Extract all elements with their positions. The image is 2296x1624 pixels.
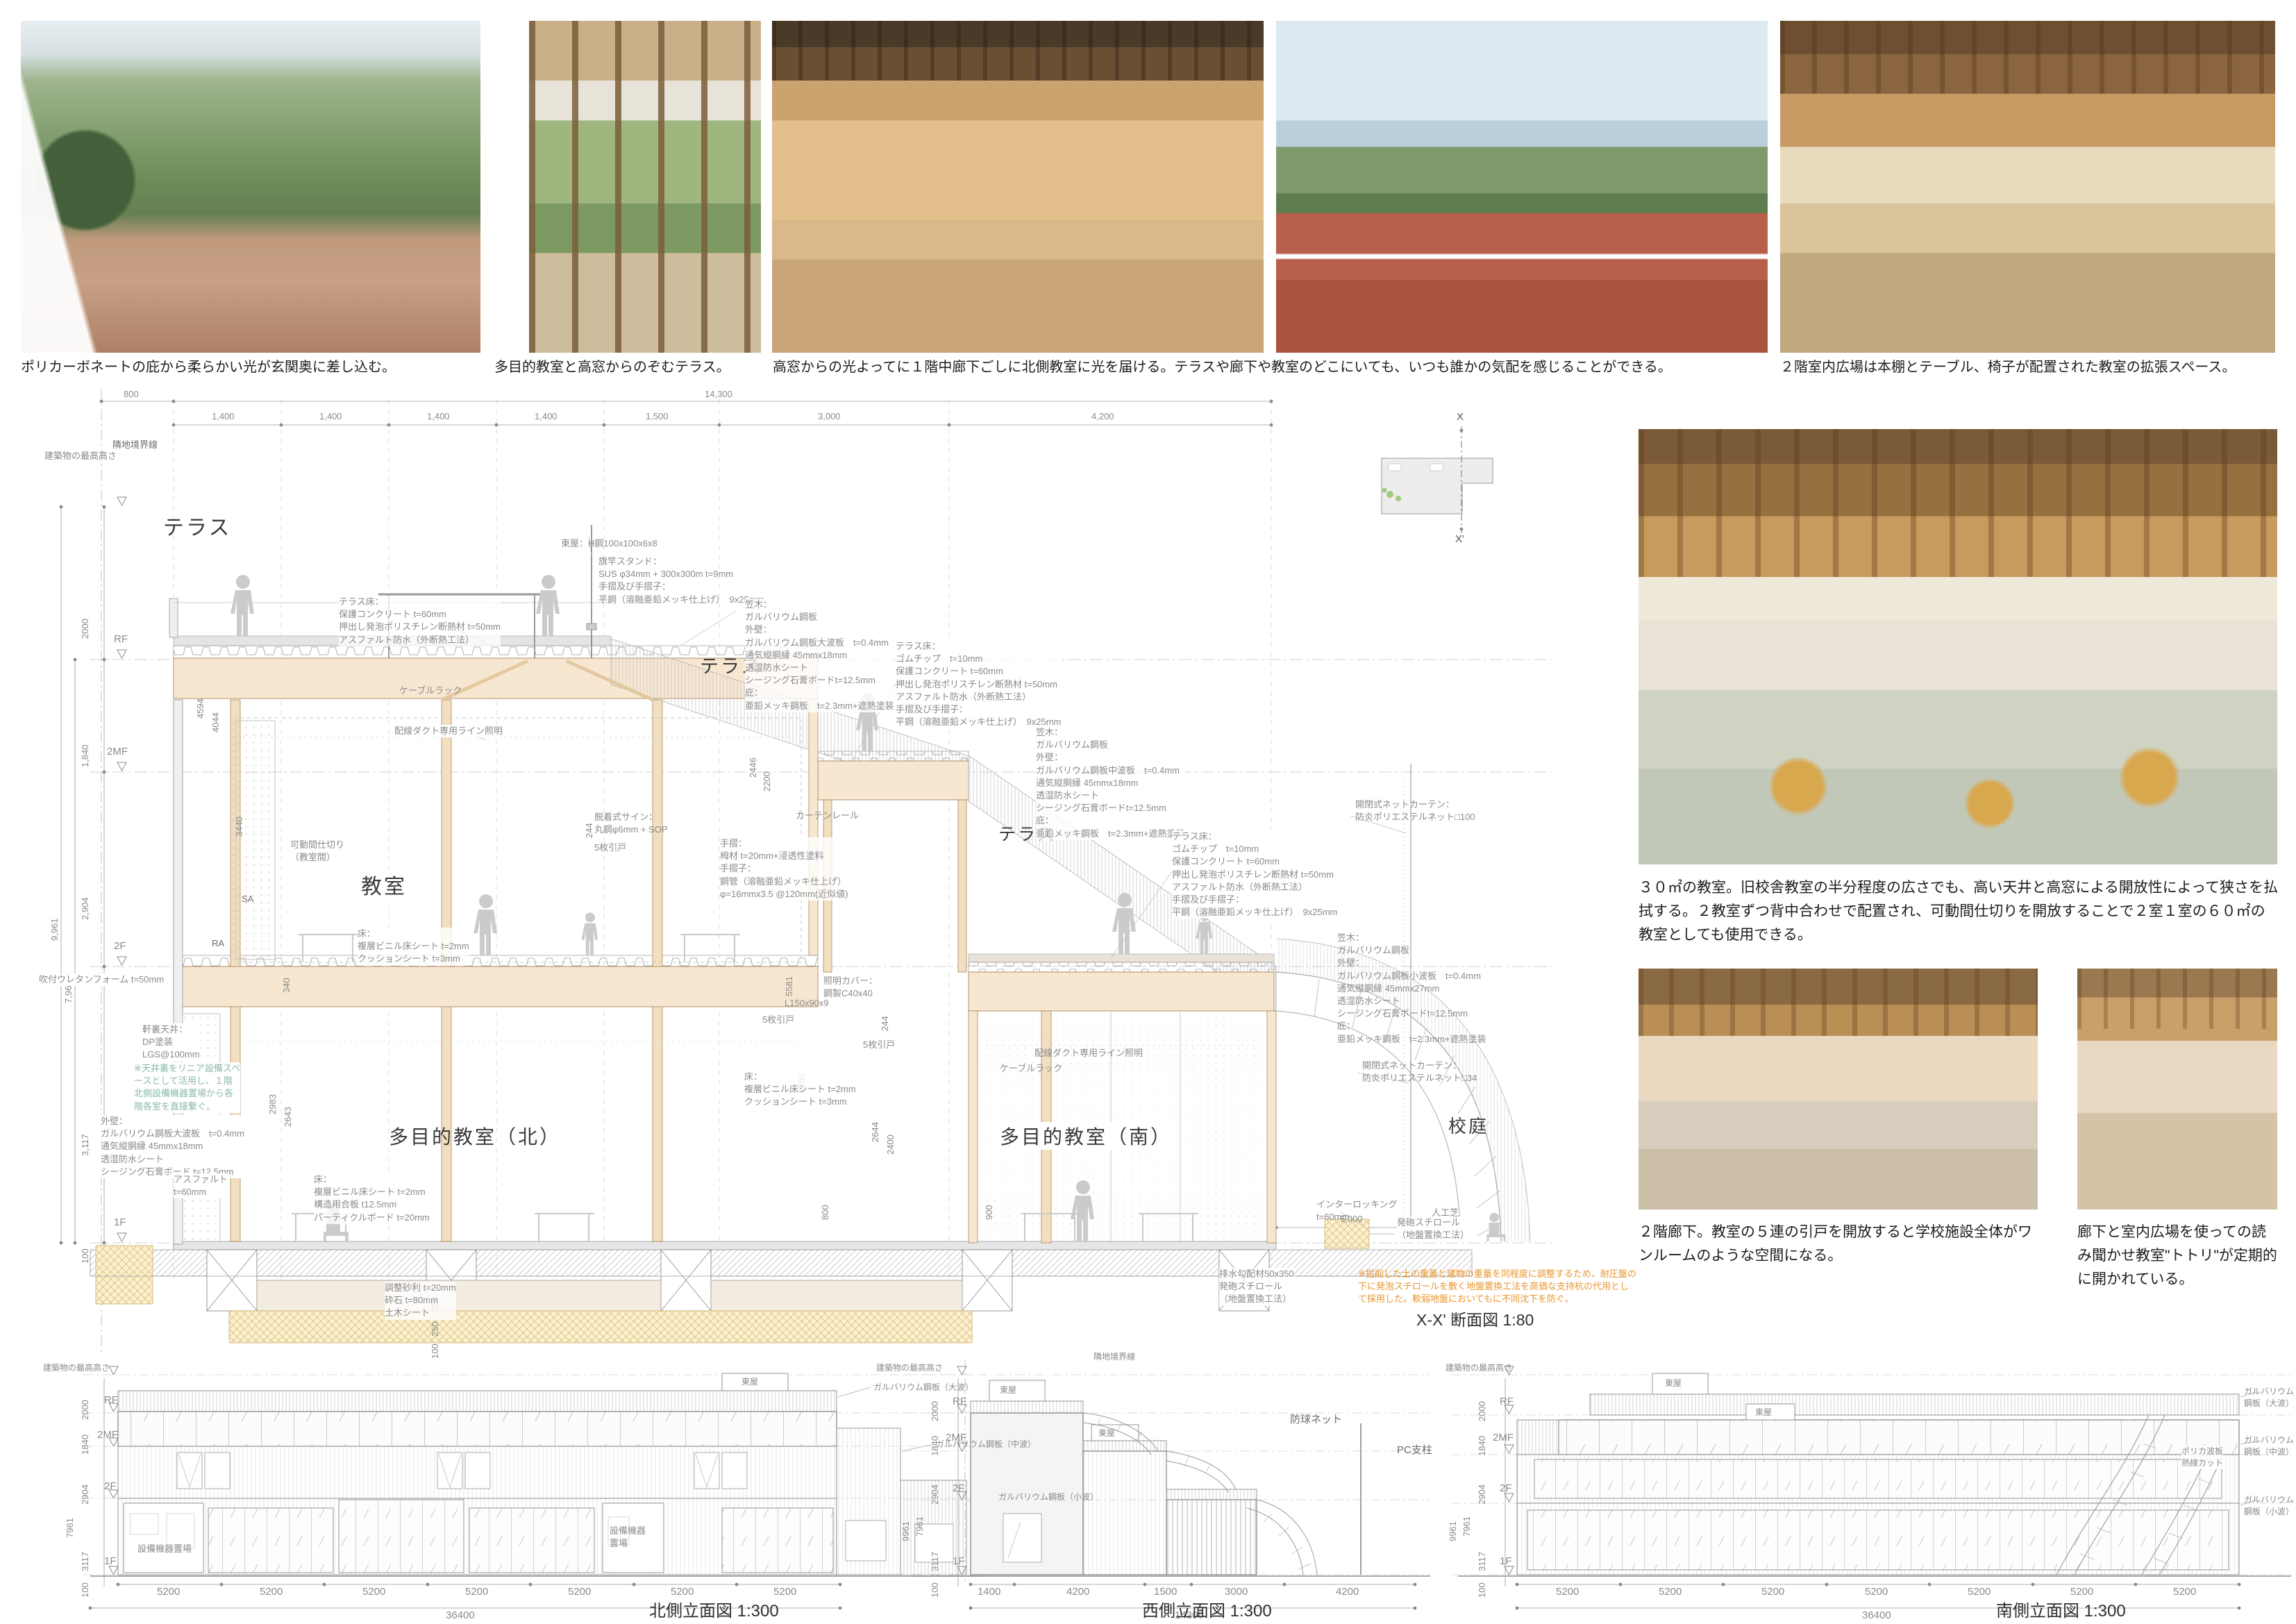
north-dim-100: 100 [80,1582,90,1598]
south-dim-7961: 7961 [1461,1516,1472,1537]
south-5200-4: 5200 [1865,1586,1888,1598]
label-floor-b: 床： 複層ビニル床シート t=2mm 構造用合板 t12.5mm パーティクルボ… [314,1173,430,1224]
south-5200-6: 5200 [2070,1586,2093,1598]
west-net: 防球ネット [1290,1412,1342,1427]
label-duct-light-1: 配線ダクト専用ライン照明 [394,725,503,737]
west-level-2mf: 2MF [946,1432,966,1443]
dim-5581: 5581 [784,976,794,996]
photo-reading-room [2077,969,2277,1209]
north-onami: ガルバリウム鋼板（大波） [873,1382,973,1393]
south-total: 36400 [1862,1609,1891,1621]
label-kasagi-mid: 笠木： ガルバリウム鋼板 外壁： ガルバリウム鋼板中波板 t=0.4mm 通気縦… [1036,726,1185,840]
south-5200-7: 5200 [2173,1586,2196,1598]
label-terrace-floor-b1: テラス床： ゴムチップ t=10mm 保護コンクリート t=60mm 押出し発泡… [896,640,1061,728]
north-equip-2: 設備機器 置場 [610,1525,646,1550]
west-level-1f: 1F [953,1555,965,1567]
label-sa: SA [242,893,253,905]
west-dim-9961: 9961 [900,1521,911,1541]
north-azumaya: 東屋 [741,1376,758,1388]
text-2f-corridor: ２階廊下。教室の５連の引戸を開放すると学校施設全体がワンルームのような空間になる… [1639,1221,2040,1268]
west-level-2f: 2F [953,1482,965,1494]
dim-4594: 4594 [195,698,206,719]
label-light-cover: 照明カバー： 鋼製C40x40 [823,975,878,1000]
note-ground-replacement: ※掘削した土の重量と建物の重量を同程度に調整するため、耐圧盤の 下に発泡スチロー… [1358,1268,1636,1306]
dim-2446: 2446 [748,757,758,778]
dim-i100: 100 [430,1343,440,1359]
west-dim-3117: 3117 [930,1552,940,1571]
south-azumaya-1: 東屋 [1665,1378,1682,1389]
north-5200-3: 5200 [362,1586,385,1598]
west-1400: 1400 [978,1586,1000,1598]
label-floor-a2: 床： 複層ビニル床シート t=2mm クッションシート t=3mm [744,1071,856,1109]
text-reading: 廊下と室内広場を使っての読み聞かせ教室"トトリ"が定期的に開かれている。 [2077,1221,2279,1291]
dim-2200: 2200 [762,771,772,792]
south-dim-1840: 1840 [1477,1436,1487,1456]
dim-grid-4: 1,400 [535,411,558,421]
south-dim-9961: 9961 [1448,1521,1458,1541]
dim-340: 340 [281,978,292,993]
north-title: 北側立面図 1:300 [649,1597,779,1621]
label-handrail: 手摺： 栂材 t=20mm+浸透性塗料 手摺子： 鋼管（溶融亜鉛メッキ仕上げ） … [720,837,848,901]
north-dim-3117: 3117 [80,1552,90,1571]
north-level-2mf: 2MF [97,1429,118,1441]
south-dim-2904: 2904 [1477,1484,1487,1505]
south-5200-2: 5200 [1659,1586,1682,1598]
north-konami: ガルバリウム鋼板（小波） [998,1491,1098,1503]
north-5200-1: 5200 [157,1586,180,1598]
dim-grid-6: 3,000 [818,411,841,421]
north-5200-7: 5200 [773,1586,796,1598]
north-5200-2: 5200 [260,1586,283,1598]
south-azumaya-2: 東屋 [1755,1407,1772,1418]
dim-grid-7: 4,200 [1091,411,1114,421]
north-dim-7961: 7961 [65,1518,75,1538]
label-cable-rack-2: ケーブルラック [1000,1062,1062,1075]
west-3000: 3000 [1225,1586,1248,1598]
dim-2400: 2400 [885,1135,896,1155]
north-level-2f: 2F [104,1480,117,1492]
south-5200-5: 5200 [1968,1586,1991,1598]
dim-grid-2: 1,400 [319,411,342,421]
north-level-1f: 1F [104,1555,117,1567]
dim-9961: 9,961 [49,918,60,941]
dim-100: 100 [80,1248,90,1264]
label-net-34: 開閉式ネットカーテン： 防炎ポリエステルネット□34 [1362,1060,1477,1085]
label-azumaya-spec: 東屋：H鋼100x100x6x8 [561,537,657,550]
south-max-height: 建築物の最高高さ [1446,1362,1512,1374]
room-kyoshitsu: 教室 [361,869,407,900]
dim-2644: 2644 [870,1122,880,1142]
west-dim-2000: 2000 [930,1401,940,1421]
label-terrace-floor-a: テラス床： 保護コンクリート t=60mm 押出し発泡ポリスチレン断熱材 t=5… [339,596,501,646]
west-dim-2904: 2904 [930,1484,940,1505]
west-title: 西側立面図 1:300 [1142,1597,1272,1621]
south-dim-100: 100 [1477,1582,1487,1598]
west-max-height: 建築物の最高高さ [876,1362,943,1374]
north-equip-1: 設備機器置場 [137,1543,192,1555]
label-partition: 可動間仕切り （教室間） [290,839,344,864]
label-cable-rack-1: ケーブルラック [399,685,462,697]
label-interlocking: インターロッキング t=60mm [1316,1198,1398,1223]
west-dim-7961: 7961 [914,1516,925,1537]
dim-1840: 1,840 [80,744,90,767]
label-5doors-1: 5枚引戸 [594,842,626,854]
west-azumaya-1: 東屋 [1000,1384,1016,1396]
label-kasagi-small: 笠木： ガルバリウム鋼板 外壁： ガルバリウム鋼板小波板 t=0.4mm 通気縦… [1337,932,1486,1046]
north-level-rf: RF [104,1394,118,1406]
dim-2643: 2643 [283,1107,293,1127]
north-dim-2904: 2904 [80,1484,90,1505]
label-asphalt: アスファルト t=60mm [174,1173,228,1198]
south-level-2f: 2F [1500,1482,1512,1494]
south-level-rf: RF [1500,1396,1514,1407]
label-ra: RA [212,937,224,950]
text-classroom: ３０㎡の教室。旧校舎教室の半分程度の広さでも、高い天井と高窓による開放性によって… [1639,876,2279,947]
level-2mf: 2MF [107,746,128,757]
north-dim-1840: 1840 [80,1434,90,1455]
label-5doors-3: 5枚引戸 [863,1039,895,1051]
south-level-1f: 1F [1500,1555,1512,1567]
dim-800: 800 [124,389,139,399]
west-dim-1840: 1840 [930,1436,940,1456]
label-eps: 発砲スチロール （地盤置換工法） [1397,1216,1469,1241]
label-urethane: 吹付ウレタンフォーム t=50mm [39,973,164,986]
boundary-line-label: 隣地境界線 [112,439,158,451]
level-1f: 1F [114,1216,126,1228]
dim-2000: 2000 [80,619,90,639]
label-kasagi-big: 笠木： ガルバリウム鋼板 外壁： ガルバリウム鋼板大波板 t=0.4mm 通気縦… [745,598,894,712]
photo-2f-corridor [1639,969,2038,1209]
label-drain-member: 排水勾配材50x350 発砲スチロール （地盤置換工法） [1219,1268,1294,1306]
dim-grid-3: 1,400 [427,411,450,421]
label-gravel: 調整砂利 t=20mm 砕石 t=80mm 土木シート [385,1282,456,1320]
keyplan-x-label: X [1457,411,1464,423]
south-polyca: ポリカ波板 熱線カット [2181,1446,2223,1469]
label-flag-stand: 旗竿スタンド： SUS φ34mm + 300x300m t=9mm 手摺及び手… [598,555,764,606]
south-chunami: ガルバリウム鋼板（中波） [2244,1434,2295,1458]
dim-244a: 244 [584,823,594,838]
label-curtain-rail: カーテンレール [796,810,859,822]
max-height-label: 建築物の最高高さ [44,450,117,462]
label-sign: 脱着式サイン： 丸鋼φ6mm + SOP [594,811,668,836]
west-1500: 1500 [1154,1586,1177,1598]
label-terrace-floor-b2: テラス床： ゴムチップ t=10mm 保護コンクリート t=60mm 押出し発泡… [1172,830,1337,919]
room-tamoku-south: 多目的教室（南） [1000,1122,1172,1150]
west-4200b: 4200 [1336,1586,1359,1598]
south-dim-2000: 2000 [1477,1401,1487,1421]
section-title: X-X' 断面図 1:80 [1416,1307,1534,1330]
south-5200-3: 5200 [1761,1586,1784,1598]
dim-grid-1: 1,400 [212,411,235,421]
north-dim-2000: 2000 [80,1400,90,1420]
north-5200-5: 5200 [568,1586,591,1598]
west-pc-post: PC支柱 [1397,1443,1432,1457]
room-tamoku-north: 多目的教室（北） [389,1122,561,1150]
north-5200-6: 5200 [671,1586,694,1598]
label-net-100: 開閉式ネットカーテン： 防炎ポリエステルネット□100 [1355,798,1475,823]
dim-2904: 2,904 [80,897,90,920]
west-4200a: 4200 [1066,1586,1089,1598]
level-rf: RF [114,633,128,645]
presentation-board: ポリカーボネートの庇から柔らかい光が玄関奥に差し込む。 多目的教室と高窓からのぞ… [0,0,2296,1624]
dim-grid-5: 1,500 [646,411,669,421]
west-boundary: 隣地境界線 [1093,1351,1135,1363]
north-max-height: 建築物の最高高さ [43,1362,110,1374]
dim-3440: 3440 [234,817,244,837]
dim-4044: 4044 [210,712,221,733]
label-floor-a1: 床： 複層ビニル床シート t=2mm クッションシート t=3mm [358,928,469,966]
label-5doors-2: 5枚引戸 [762,1014,794,1026]
room-kotei: 校庭 [1448,1112,1489,1138]
west-dim-100: 100 [930,1582,940,1598]
label-eaves-ceiling: 軒裏天井： DP塗装 LGS@100mm [142,1023,200,1062]
dim-244b: 244 [880,1016,890,1031]
north-5200-4: 5200 [465,1586,488,1598]
note-linear-space: ※天井裏をリニア設備スペ ースとして活用し、１階 北側設備機器置場から各 階各室… [134,1062,240,1113]
label-wall-big: 外壁： ガルバリウム鋼板大波板 t=0.4mm 通気縦胴縁 45mmx18mm … [101,1115,244,1178]
dim-i900: 900 [984,1205,994,1220]
room-terrace-1: テラス [163,510,231,541]
south-dim-3117: 3117 [1477,1552,1487,1571]
dim-i800: 800 [820,1205,830,1220]
label-l-angle: L150x90x9 [785,997,829,1010]
level-2f: 2F [114,940,126,952]
west-level-rf: RF [953,1396,966,1407]
south-title: 南側立面図 1:300 [1996,1597,2126,1621]
south-level-2mf: 2MF [1493,1432,1514,1443]
dim-14300: 14,300 [705,389,732,399]
dim-3117: 3,117 [80,1134,90,1156]
south-5200-1: 5200 [1556,1586,1579,1598]
south-konami: ガルバリウム鋼板（小波） [2244,1494,2295,1518]
north-total: 36400 [446,1609,475,1621]
south-onami: ガルバリウム鋼板（大波） [2244,1386,2295,1409]
keyplan-x-prime-label: X' [1455,533,1464,545]
label-duct-light-2: 配線ダクト専用ライン照明 [1034,1047,1143,1060]
west-azumaya-2: 東屋 [1098,1428,1115,1439]
dim-250: 250 [430,1321,440,1337]
dim-2983: 2983 [267,1094,278,1114]
photo-classroom-large [1639,429,2277,864]
